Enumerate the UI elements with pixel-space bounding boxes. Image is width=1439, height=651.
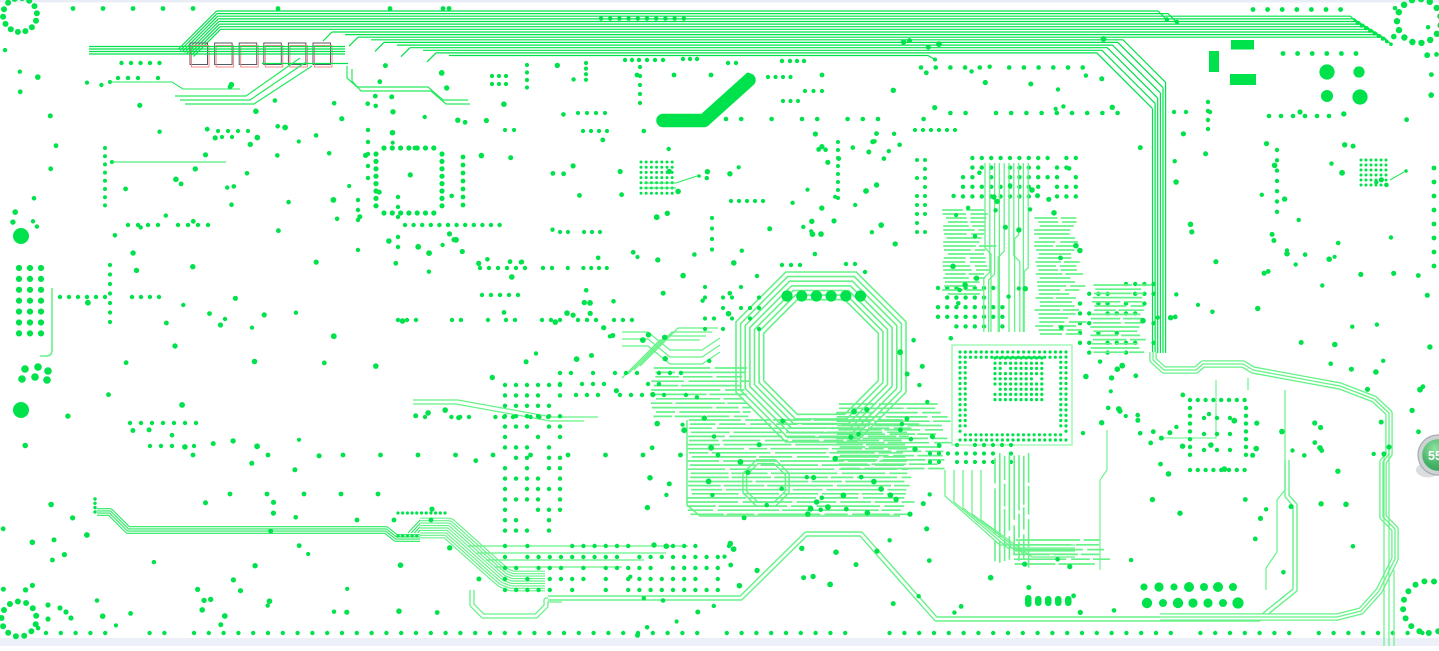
svg-text:55: 55 [1428,449,1439,463]
